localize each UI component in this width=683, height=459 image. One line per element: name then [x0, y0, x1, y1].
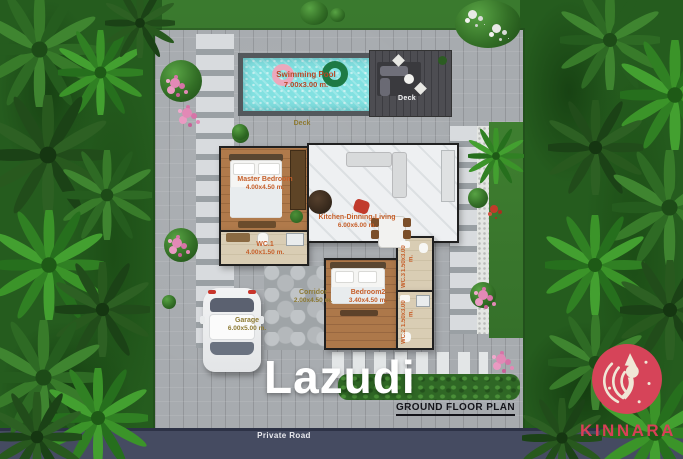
car-taillight — [248, 290, 256, 294]
plant-icon — [290, 210, 303, 223]
room-dims: 1.50x3.00 m. — [401, 244, 416, 273]
car-windshield — [210, 342, 254, 355]
bed-icon — [229, 154, 283, 218]
bush-icon — [232, 124, 248, 140]
pillow-icon — [233, 163, 255, 175]
pillow-icon — [258, 163, 280, 175]
car-taillight — [208, 290, 216, 294]
wardrobe-icon — [290, 150, 306, 210]
room-name: WC.2 — [401, 329, 416, 344]
car-mirror — [259, 316, 264, 324]
brand-name: KINNARA — [566, 421, 683, 441]
pool-ring-green-icon — [322, 61, 348, 87]
outdoor-table-icon — [404, 74, 414, 84]
room-name: WC.3 — [401, 273, 416, 288]
deck-plant-icon — [438, 56, 447, 65]
road-label: Private Road — [250, 431, 318, 440]
pink-flower-bush-icon — [478, 290, 488, 300]
bed-icon — [330, 262, 386, 304]
room-dims: 1.50x3.00 m. — [401, 298, 416, 329]
bed-duvet — [331, 287, 385, 303]
dining-chair-icon — [371, 218, 379, 227]
bush-icon — [160, 60, 202, 102]
sofa-icon — [392, 152, 407, 198]
white-flower-bush-icon — [468, 10, 477, 19]
bed-duvet — [230, 187, 282, 217]
plan-title: GROUND FLOOR PLAN — [396, 402, 515, 416]
kinnara-logo-icon — [589, 341, 665, 417]
pink-flower-bush-icon — [496, 354, 506, 364]
vanity-icon — [226, 233, 250, 242]
outdoor-sofa-icon — [380, 78, 390, 96]
sofa-icon — [346, 152, 392, 167]
pillow-icon — [335, 271, 354, 283]
bush-icon — [162, 295, 176, 309]
bush-icon — [455, 0, 521, 48]
bush-icon — [330, 8, 345, 22]
palm-tree-icon — [0, 392, 82, 459]
pillow-icon — [358, 271, 377, 283]
pink-flower-bush-icon — [172, 238, 182, 248]
dining-chair-icon — [403, 218, 411, 227]
pool-ring-pink-icon — [272, 64, 294, 86]
dining-chair-icon — [403, 230, 411, 239]
pink-flower-bush-icon — [182, 108, 192, 118]
dining-chair-icon — [371, 230, 379, 239]
palm-tree-icon — [468, 128, 524, 184]
floor-plan-scene: Swimming Pool 7.00x3.00 m. Deck Deck — [0, 0, 683, 459]
coffee-table-icon — [308, 190, 332, 214]
toilet-icon — [258, 233, 268, 245]
red-flower-bush-icon — [490, 205, 498, 213]
shower-icon — [286, 233, 304, 246]
white-flower-bush-icon — [492, 24, 501, 33]
label-wc2: WC.2 1.50x3.00 m. — [401, 298, 416, 344]
bench-icon — [238, 221, 276, 228]
watermark: Lazudi — [264, 350, 416, 404]
palm-tree-icon — [105, 0, 175, 58]
car-rear-window — [210, 298, 254, 312]
shower-icon — [416, 295, 430, 307]
bush-icon — [300, 1, 328, 25]
label-wc3: WC.3 1.50x3.00 m. — [401, 244, 416, 288]
bench-icon — [340, 310, 378, 316]
outdoor-sofa-icon — [380, 66, 408, 76]
corridor-path — [264, 266, 324, 350]
toilet-icon — [419, 243, 428, 253]
car-mirror — [200, 316, 205, 324]
car-icon — [203, 288, 261, 372]
kitchen-counter-icon — [441, 150, 455, 202]
pink-flower-bush-icon — [170, 78, 180, 88]
car-roof — [209, 314, 255, 340]
bush-icon — [468, 188, 488, 208]
